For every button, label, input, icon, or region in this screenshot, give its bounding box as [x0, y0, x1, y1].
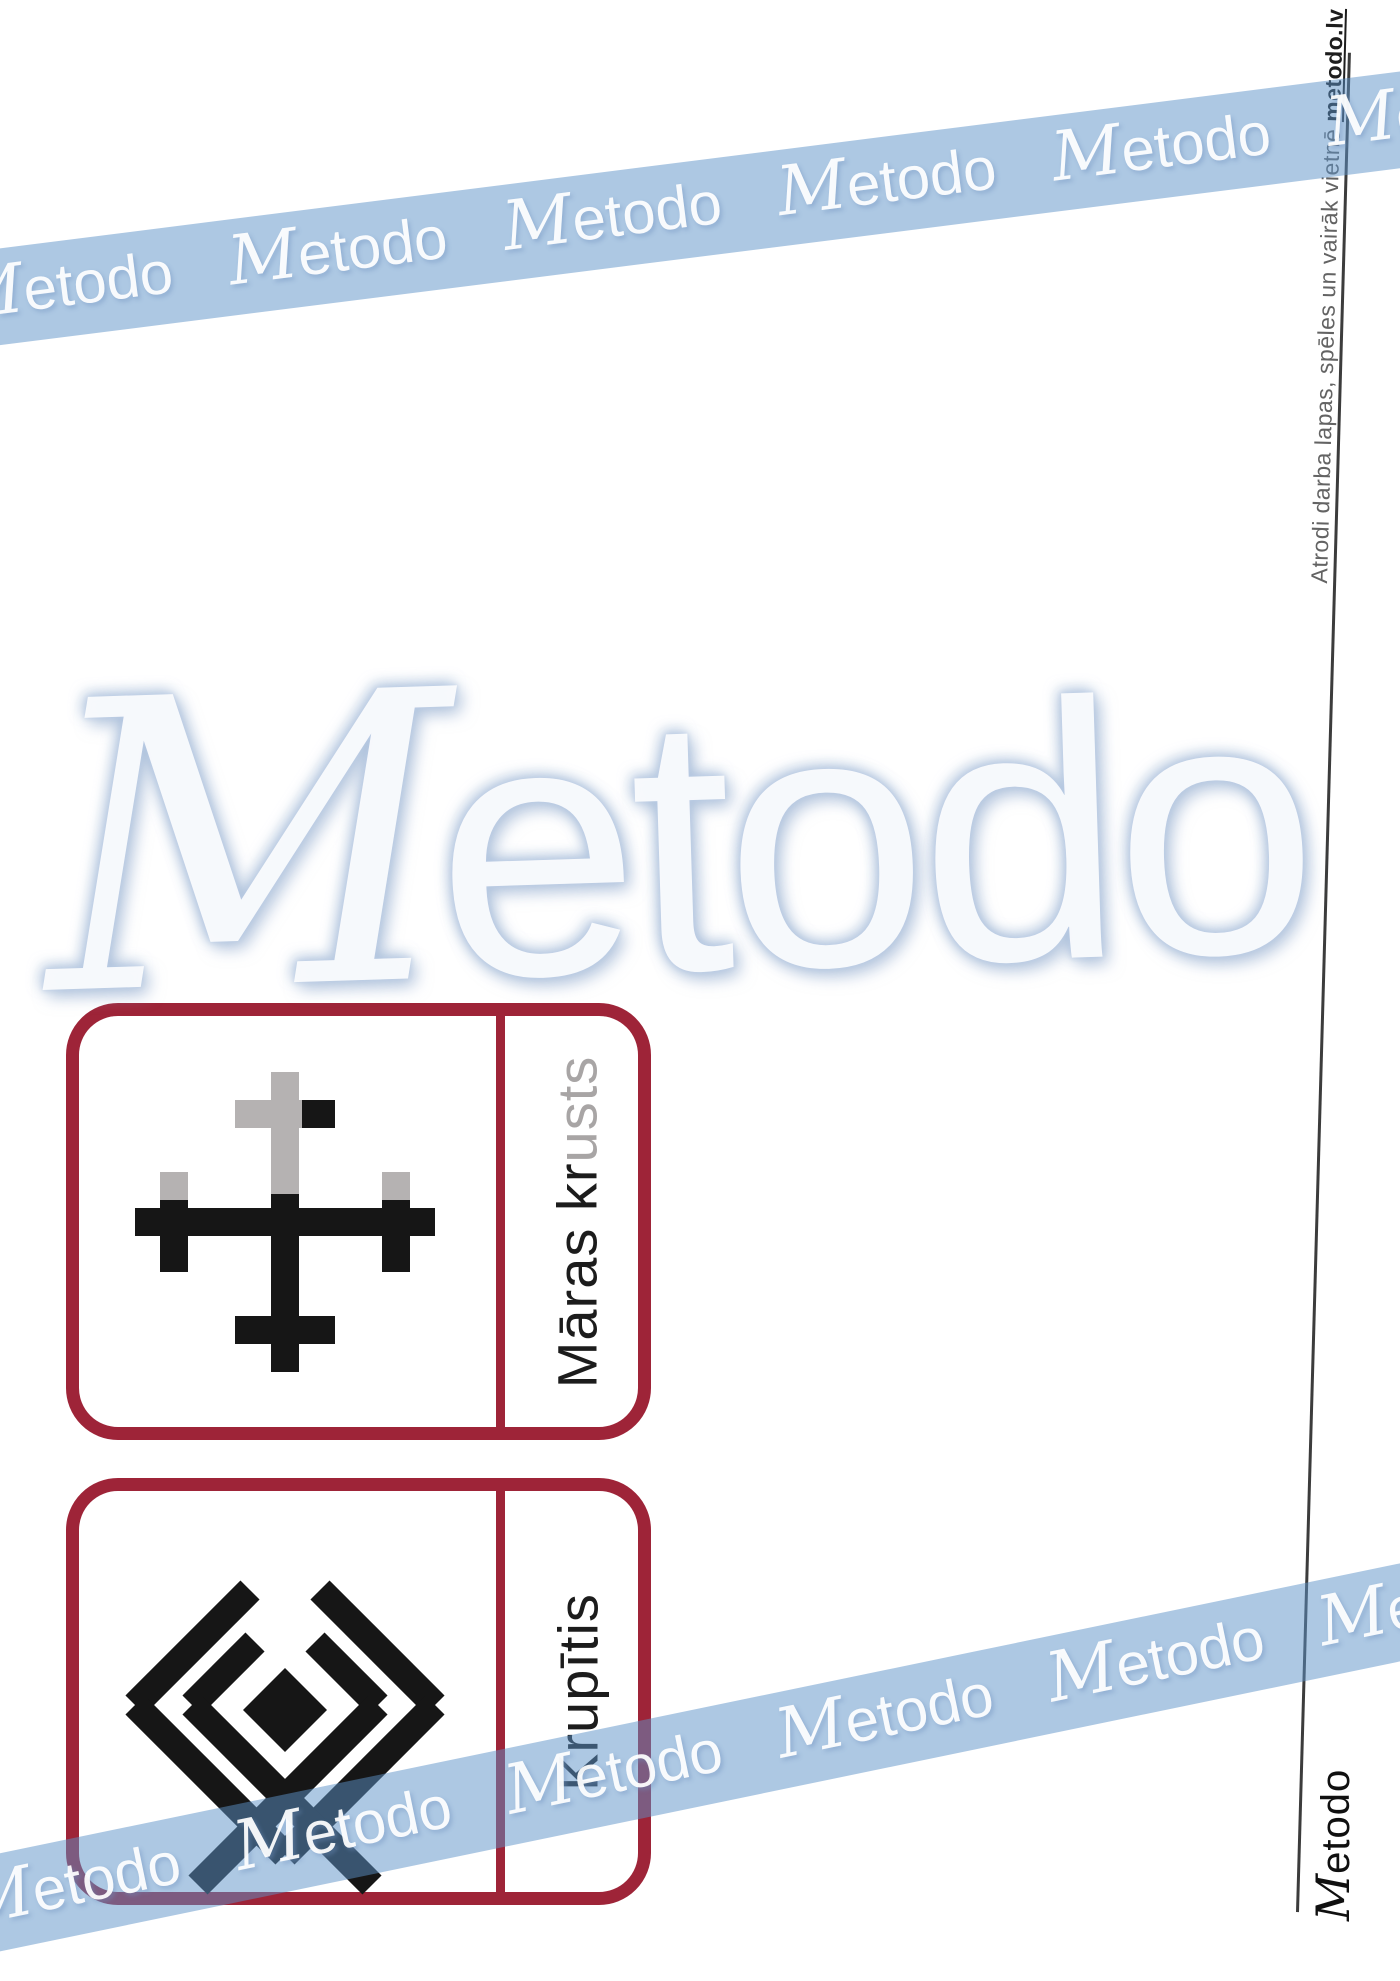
metodo-center-watermark: Metodo	[37, 580, 1316, 1085]
ribbon-script-m: M	[1321, 75, 1400, 162]
worksheet-page: Māras krusts Krupītis Atrodi darba lapas…	[0, 0, 1400, 1981]
ribbon-script-m: M	[772, 145, 851, 232]
ribbon-rest: etodo	[1117, 98, 1275, 185]
watermark-rest: etodo	[429, 615, 1315, 1061]
ribbon-script-m: M	[1047, 110, 1126, 197]
footer-metodo-logo: Metodo	[1306, 1701, 1360, 1921]
ribbon-rest: etodo	[838, 1659, 999, 1757]
watermark-script-m: M	[37, 607, 461, 1085]
ribbon-rest: etodo	[842, 133, 1000, 220]
ribbon-rest: etodo	[25, 1827, 186, 1925]
logo-script-m: M	[1306, 1874, 1360, 1921]
ribbon-rest: etodo	[568, 167, 726, 254]
logo-rest: etodo	[1314, 1769, 1358, 1874]
ribbon-rest: etodo	[567, 1715, 728, 1813]
ribbon-script-m: M	[224, 214, 303, 301]
ribbon-script-m: M	[498, 179, 577, 266]
ribbon-rest: etodo	[296, 1771, 457, 1869]
ribbon-rest: etodo	[293, 202, 451, 289]
card-label-krupitis: Krupītis	[547, 1479, 611, 1906]
ribbon-rest: etodo	[1109, 1603, 1270, 1701]
metodo-ribbon-word: Metodo	[0, 230, 177, 336]
ribbon-rest: etodo	[19, 237, 177, 324]
